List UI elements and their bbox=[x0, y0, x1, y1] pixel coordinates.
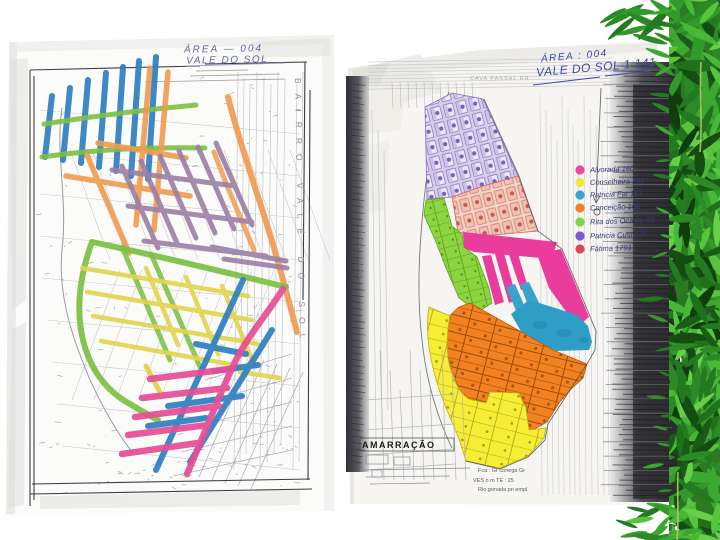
svg-text:Fátima 1791: Fátima 1791 bbox=[590, 243, 632, 253]
svg-text:Rio gonada pn empl: Rio gonada pn empl bbox=[478, 487, 527, 493]
svg-text:Conceição 168: Conceição 168 bbox=[590, 202, 641, 213]
svg-text:Patricia Fat 151: Patricia Fat 151 bbox=[590, 189, 643, 200]
svg-text:AV GOV VAL RD: AV GOV VAL RD bbox=[357, 228, 363, 279]
svg-text:Fca : Gr conega Gr: Fca : Gr conega Gr bbox=[478, 468, 525, 474]
svg-text:VES o m TE : 25: VES o m TE : 25 bbox=[473, 478, 514, 484]
svg-text:Alvorada 160: Alvorada 160 bbox=[589, 164, 635, 175]
svg-text:Conselheira 191: Conselheira 191 bbox=[590, 176, 645, 187]
svg-text:AMARRAÇÃO: AMARRAÇÃO bbox=[362, 440, 436, 450]
svg-text:CAVA PASSAL RR: CAVA PASSAL RR bbox=[470, 76, 530, 82]
